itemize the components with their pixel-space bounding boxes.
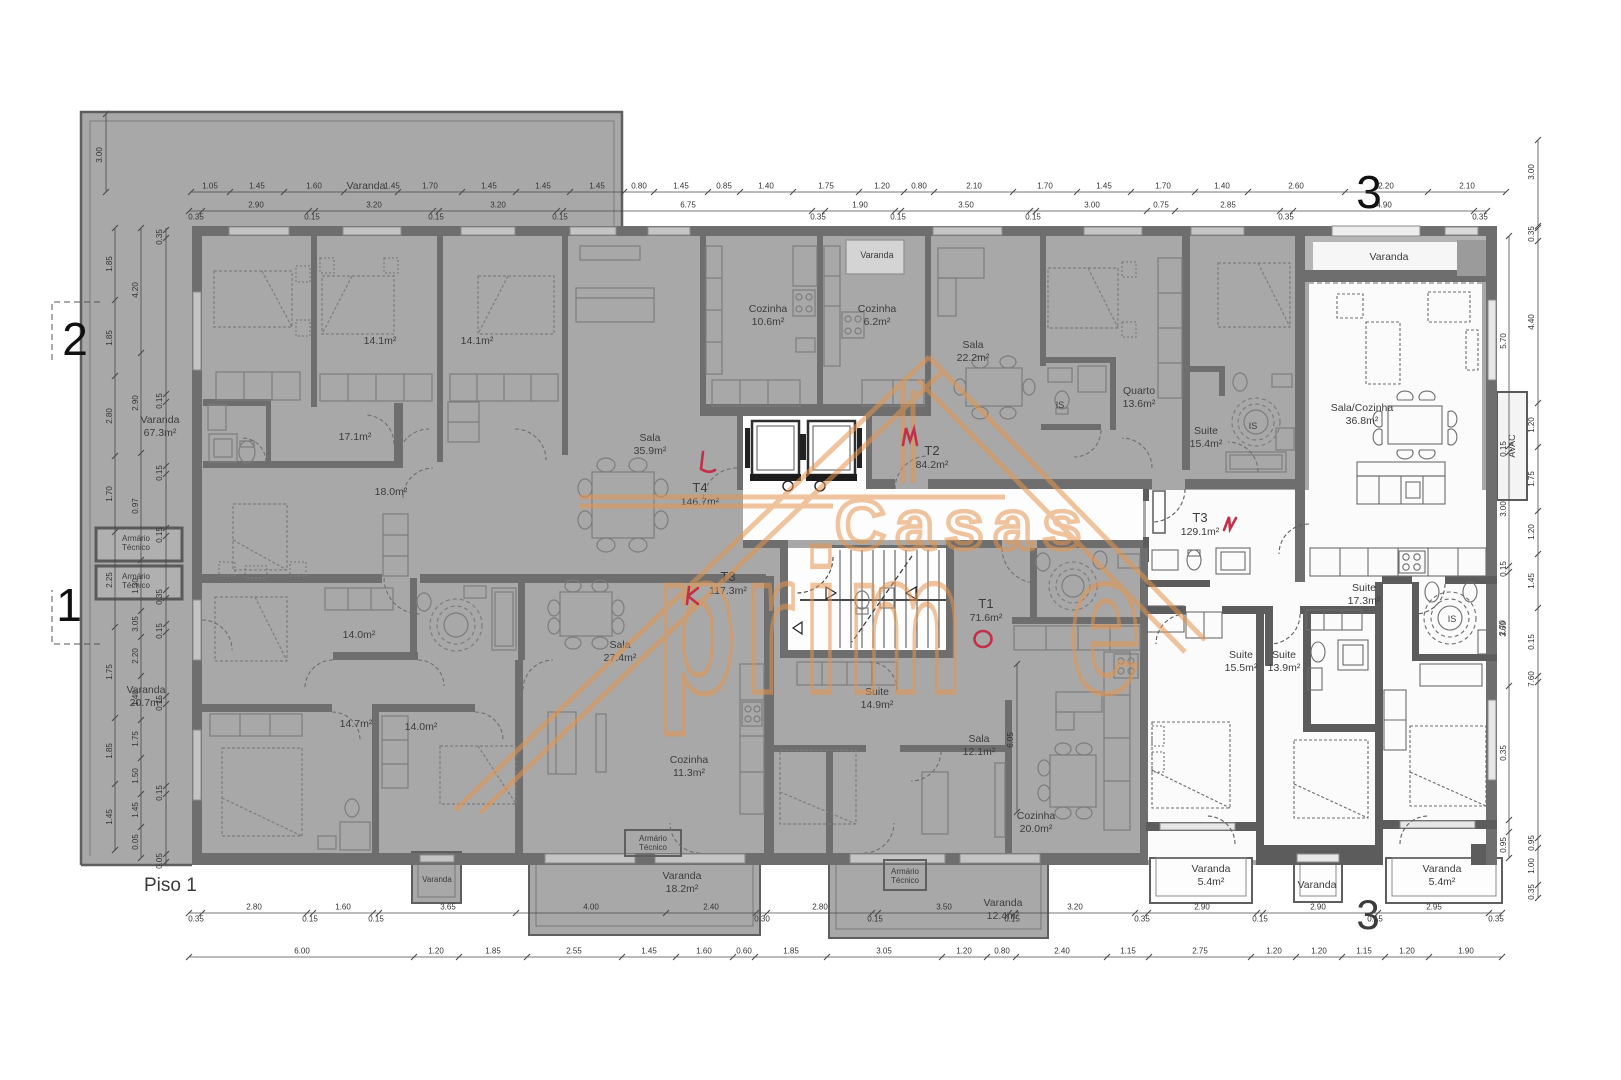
svg-text:Varanda: Varanda: [1192, 863, 1231, 875]
svg-text:22.2m²: 22.2m²: [957, 352, 990, 364]
svg-text:T2: T2: [924, 443, 939, 458]
svg-text:Sala/Cozinha: Sala/Cozinha: [1331, 402, 1394, 414]
svg-text:4.20: 4.20: [131, 282, 140, 298]
svg-text:129.1m²: 129.1m²: [1181, 526, 1220, 538]
svg-text:2.75: 2.75: [1192, 947, 1208, 956]
svg-text:0.15: 0.15: [155, 465, 164, 481]
svg-text:6.2m²: 6.2m²: [864, 316, 891, 328]
svg-text:1.45: 1.45: [641, 947, 657, 956]
svg-text:20.0m²: 20.0m²: [1020, 823, 1053, 835]
svg-text:1.20: 1.20: [1527, 524, 1536, 540]
svg-text:2.80: 2.80: [812, 903, 828, 912]
svg-text:5.4m²: 5.4m²: [1198, 876, 1225, 888]
svg-text:1.60: 1.60: [696, 947, 712, 956]
svg-text:Suite: Suite: [1352, 582, 1376, 594]
svg-text:1.20: 1.20: [1311, 947, 1327, 956]
svg-text:Piso 1: Piso 1: [144, 875, 197, 896]
svg-text:0.35: 0.35: [155, 229, 164, 245]
svg-text:Varanda: Varanda: [1370, 251, 1409, 263]
svg-text:0.60: 0.60: [736, 947, 752, 956]
svg-text:0.30: 0.30: [754, 915, 770, 924]
svg-text:1.85: 1.85: [105, 743, 114, 759]
svg-text:0.35: 0.35: [188, 915, 204, 924]
svg-text:Cozinha: Cozinha: [858, 303, 897, 315]
svg-text:T1: T1: [978, 596, 993, 611]
svg-text:14.1m²: 14.1m²: [461, 335, 494, 347]
svg-text:1.30: 1.30: [131, 578, 140, 594]
svg-text:2.40: 2.40: [703, 903, 719, 912]
svg-text:1.90: 1.90: [1458, 947, 1474, 956]
svg-text:Armário: Armário: [891, 867, 920, 876]
svg-text:T4: T4: [692, 480, 707, 495]
svg-text:Varanda: Varanda: [860, 250, 893, 260]
svg-text:2.10: 2.10: [966, 182, 982, 191]
svg-text:Suite: Suite: [1272, 649, 1296, 661]
svg-text:0.15: 0.15: [368, 915, 384, 924]
svg-text:0.15: 0.15: [1527, 634, 1536, 650]
svg-text:Quarto: Quarto: [1123, 385, 1155, 397]
svg-text:3.05: 3.05: [876, 947, 892, 956]
svg-text:1.20: 1.20: [428, 947, 444, 956]
svg-text:14.0m²: 14.0m²: [343, 629, 376, 641]
svg-text:1: 1: [56, 579, 82, 631]
svg-text:0.15: 0.15: [155, 695, 164, 711]
svg-text:0.15: 0.15: [1499, 561, 1508, 577]
svg-text:1.70: 1.70: [422, 182, 438, 191]
svg-text:0.15: 0.15: [155, 785, 164, 801]
svg-text:1.45: 1.45: [535, 182, 551, 191]
svg-text:1.85: 1.85: [783, 947, 799, 956]
svg-text:1.75: 1.75: [105, 664, 114, 680]
svg-text:18.0m²: 18.0m²: [375, 486, 408, 498]
svg-text:Sala: Sala: [639, 432, 660, 444]
svg-text:3.20: 3.20: [1067, 903, 1083, 912]
svg-text:1.40: 1.40: [758, 182, 774, 191]
svg-text:7.60: 7.60: [1527, 671, 1536, 687]
svg-text:Técnico: Técnico: [122, 543, 151, 552]
svg-text:5.4m²: 5.4m²: [1429, 876, 1456, 888]
svg-text:Varanda: Varanda: [422, 875, 452, 884]
svg-text:0.97: 0.97: [131, 498, 140, 514]
svg-text:4.90: 4.90: [1376, 201, 1392, 210]
svg-text:0.15: 0.15: [1499, 441, 1508, 457]
svg-text:1.75: 1.75: [131, 731, 140, 747]
svg-text:0.15: 0.15: [302, 915, 318, 924]
svg-text:1.00: 1.00: [1527, 858, 1536, 874]
svg-text:1.85: 1.85: [105, 256, 114, 272]
svg-text:0.35: 0.35: [155, 589, 164, 605]
svg-text:1.45: 1.45: [131, 802, 140, 818]
svg-text:IS: IS: [1448, 614, 1457, 624]
svg-text:Varanda: Varanda: [984, 897, 1023, 909]
svg-text:0.35: 0.35: [1278, 213, 1294, 222]
svg-text:0.35: 0.35: [1472, 213, 1488, 222]
svg-text:2.10: 2.10: [1459, 182, 1475, 191]
svg-text:0.35: 0.35: [1488, 915, 1504, 924]
svg-text:IS: IS: [1249, 421, 1258, 431]
svg-text:12.1m²: 12.1m²: [963, 746, 996, 758]
svg-text:0.35: 0.35: [1134, 915, 1150, 924]
svg-text:2.80: 2.80: [246, 903, 262, 912]
svg-text:2.70: 2.70: [1498, 620, 1507, 636]
svg-text:1.60: 1.60: [335, 903, 351, 912]
svg-text:3.00: 3.00: [1084, 201, 1100, 210]
svg-text:35.9m²: 35.9m²: [634, 445, 667, 457]
svg-text:0.15: 0.15: [1367, 915, 1383, 924]
svg-text:Suite: Suite: [1229, 649, 1253, 661]
svg-text:17.3m²: 17.3m²: [1348, 595, 1381, 607]
svg-text:14.0m²: 14.0m²: [405, 721, 438, 733]
svg-text:1.70: 1.70: [105, 486, 114, 502]
svg-text:1.45: 1.45: [1527, 573, 1536, 589]
svg-text:Cozinha: Cozinha: [670, 754, 709, 766]
svg-text:2: 2: [62, 313, 88, 365]
svg-text:84.2m²: 84.2m²: [916, 459, 949, 471]
svg-text:3.65: 3.65: [440, 903, 456, 912]
svg-text:Varanda: Varanda: [141, 414, 180, 426]
svg-text:6.05: 6.05: [1006, 732, 1015, 748]
svg-text:0.35: 0.35: [188, 213, 204, 222]
svg-text:71.6m²: 71.6m²: [970, 612, 1003, 624]
svg-text:1.20: 1.20: [874, 182, 890, 191]
svg-text:Armário: Armário: [639, 834, 668, 843]
svg-text:Cozinha: Cozinha: [749, 303, 788, 315]
svg-text:0.15: 0.15: [1252, 915, 1268, 924]
svg-text:1.05: 1.05: [202, 182, 218, 191]
svg-text:1.15: 1.15: [1356, 947, 1372, 956]
svg-text:1.20: 1.20: [1399, 947, 1415, 956]
svg-text:1.90: 1.90: [852, 201, 868, 210]
svg-text:Varanda: Varanda: [663, 870, 702, 882]
svg-text:0.15: 0.15: [890, 213, 906, 222]
svg-text:6.75: 6.75: [680, 201, 696, 210]
svg-text:0.15: 0.15: [155, 623, 164, 639]
svg-text:17.1m²: 17.1m²: [339, 431, 372, 443]
svg-text:1.45: 1.45: [481, 182, 497, 191]
svg-text:0.35: 0.35: [810, 213, 826, 222]
svg-text:2.95: 2.95: [1426, 903, 1442, 912]
svg-text:2.90: 2.90: [131, 395, 140, 411]
svg-text:0.75: 0.75: [1153, 201, 1169, 210]
svg-text:1.45: 1.45: [105, 809, 114, 825]
svg-text:Técnico: Técnico: [891, 876, 920, 885]
svg-text:Armário: Armário: [122, 534, 151, 543]
svg-text:2.80: 2.80: [105, 408, 114, 424]
svg-text:1.15: 1.15: [1120, 947, 1136, 956]
svg-text:0.80: 0.80: [911, 182, 927, 191]
svg-text:0.15: 0.15: [304, 213, 320, 222]
svg-text:4.40: 4.40: [1527, 314, 1536, 330]
svg-text:1.60: 1.60: [306, 182, 322, 191]
svg-text:11.3m²: 11.3m²: [673, 767, 705, 779]
svg-text:1.45: 1.45: [673, 182, 689, 191]
svg-text:1.45: 1.45: [589, 182, 605, 191]
svg-text:15.5m²: 15.5m²: [1225, 662, 1258, 674]
svg-text:0.15: 0.15: [1004, 915, 1020, 924]
svg-text:1.20: 1.20: [1527, 417, 1536, 433]
svg-text:1.45: 1.45: [249, 182, 265, 191]
svg-text:0.35: 0.35: [1499, 745, 1508, 761]
svg-text:2.90: 2.90: [248, 201, 264, 210]
svg-text:4.00: 4.00: [583, 903, 599, 912]
svg-text:3.20: 3.20: [490, 201, 506, 210]
svg-text:2.20: 2.20: [131, 648, 140, 664]
svg-text:36.8m²: 36.8m²: [1346, 415, 1379, 427]
svg-text:T3: T3: [1192, 510, 1207, 525]
svg-text:1.85: 1.85: [485, 947, 501, 956]
svg-text:1.70: 1.70: [1155, 182, 1171, 191]
svg-text:1.20: 1.20: [1266, 947, 1282, 956]
svg-text:Sala: Sala: [968, 733, 989, 745]
svg-text:1.50: 1.50: [131, 768, 140, 784]
svg-text:IS: IS: [1056, 400, 1065, 410]
svg-text:3.20: 3.20: [366, 201, 382, 210]
svg-text:10.6m²: 10.6m²: [752, 316, 785, 328]
svg-text:0.15: 0.15: [155, 393, 164, 409]
svg-text:prime: prime: [657, 510, 1149, 735]
svg-text:1.45: 1.45: [1096, 182, 1112, 191]
svg-text:3.00: 3.00: [1527, 164, 1536, 180]
svg-text:67.3m²: 67.3m²: [144, 427, 177, 439]
svg-text:5.70: 5.70: [1499, 333, 1508, 349]
svg-text:2.20: 2.20: [1378, 182, 1394, 191]
svg-text:3.50: 3.50: [936, 903, 952, 912]
svg-text:3.00: 3.00: [95, 147, 104, 163]
svg-text:6.00: 6.00: [294, 947, 310, 956]
svg-text:1.85: 1.85: [105, 330, 114, 346]
svg-text:0.80: 0.80: [631, 182, 647, 191]
svg-text:14.1m²: 14.1m²: [364, 335, 397, 347]
svg-text:0.95: 0.95: [1499, 837, 1508, 853]
svg-text:1.45: 1.45: [384, 182, 400, 191]
svg-text:Varanda: Varanda: [347, 180, 386, 192]
svg-text:0.05: 0.05: [155, 853, 164, 869]
svg-text:0.95: 0.95: [1527, 835, 1536, 851]
svg-text:1.20: 1.20: [956, 947, 972, 956]
svg-text:Varanda: Varanda: [1423, 863, 1462, 875]
svg-text:Varanda: Varanda: [1298, 879, 1337, 891]
svg-text:2.55: 2.55: [566, 947, 582, 956]
svg-text:18.2m²: 18.2m²: [666, 883, 699, 895]
svg-text:2.90: 2.90: [1194, 903, 1210, 912]
svg-text:0.05: 0.05: [131, 834, 140, 850]
svg-text:0.85: 0.85: [716, 182, 732, 191]
svg-text:1.40: 1.40: [131, 690, 140, 706]
svg-text:13.9m²: 13.9m²: [1268, 662, 1301, 674]
svg-text:14.7m²: 14.7m²: [340, 718, 373, 730]
svg-text:0.35: 0.35: [1527, 226, 1536, 242]
svg-text:3.05: 3.05: [131, 616, 140, 632]
svg-text:0.15: 0.15: [155, 527, 164, 543]
svg-text:1.40: 1.40: [1214, 182, 1230, 191]
svg-text:1.70: 1.70: [1037, 182, 1053, 191]
svg-text:2.85: 2.85: [1220, 201, 1236, 210]
svg-text:2.25: 2.25: [105, 572, 114, 588]
svg-text:2.90: 2.90: [1310, 903, 1326, 912]
svg-text:Sala: Sala: [962, 339, 983, 351]
svg-text:0.15: 0.15: [867, 915, 883, 924]
svg-text:0.35: 0.35: [1527, 884, 1536, 900]
svg-text:3.00: 3.00: [1499, 501, 1508, 517]
svg-text:0.15: 0.15: [552, 213, 568, 222]
svg-text:2.60: 2.60: [1288, 182, 1304, 191]
svg-text:Técnico: Técnico: [639, 843, 668, 852]
svg-text:2.40: 2.40: [1054, 947, 1070, 956]
svg-text:15.4m²: 15.4m²: [1190, 438, 1223, 450]
svg-text:1.75: 1.75: [1527, 471, 1536, 487]
svg-text:13.6m²: 13.6m²: [1123, 398, 1156, 410]
svg-text:0.80: 0.80: [994, 947, 1010, 956]
svg-text:3.50: 3.50: [958, 201, 974, 210]
svg-text:0.15: 0.15: [1025, 213, 1041, 222]
svg-text:Cozinha: Cozinha: [1017, 810, 1056, 822]
svg-text:Suite: Suite: [1194, 425, 1218, 437]
svg-text:1.75: 1.75: [818, 182, 834, 191]
svg-text:0.15: 0.15: [428, 213, 444, 222]
